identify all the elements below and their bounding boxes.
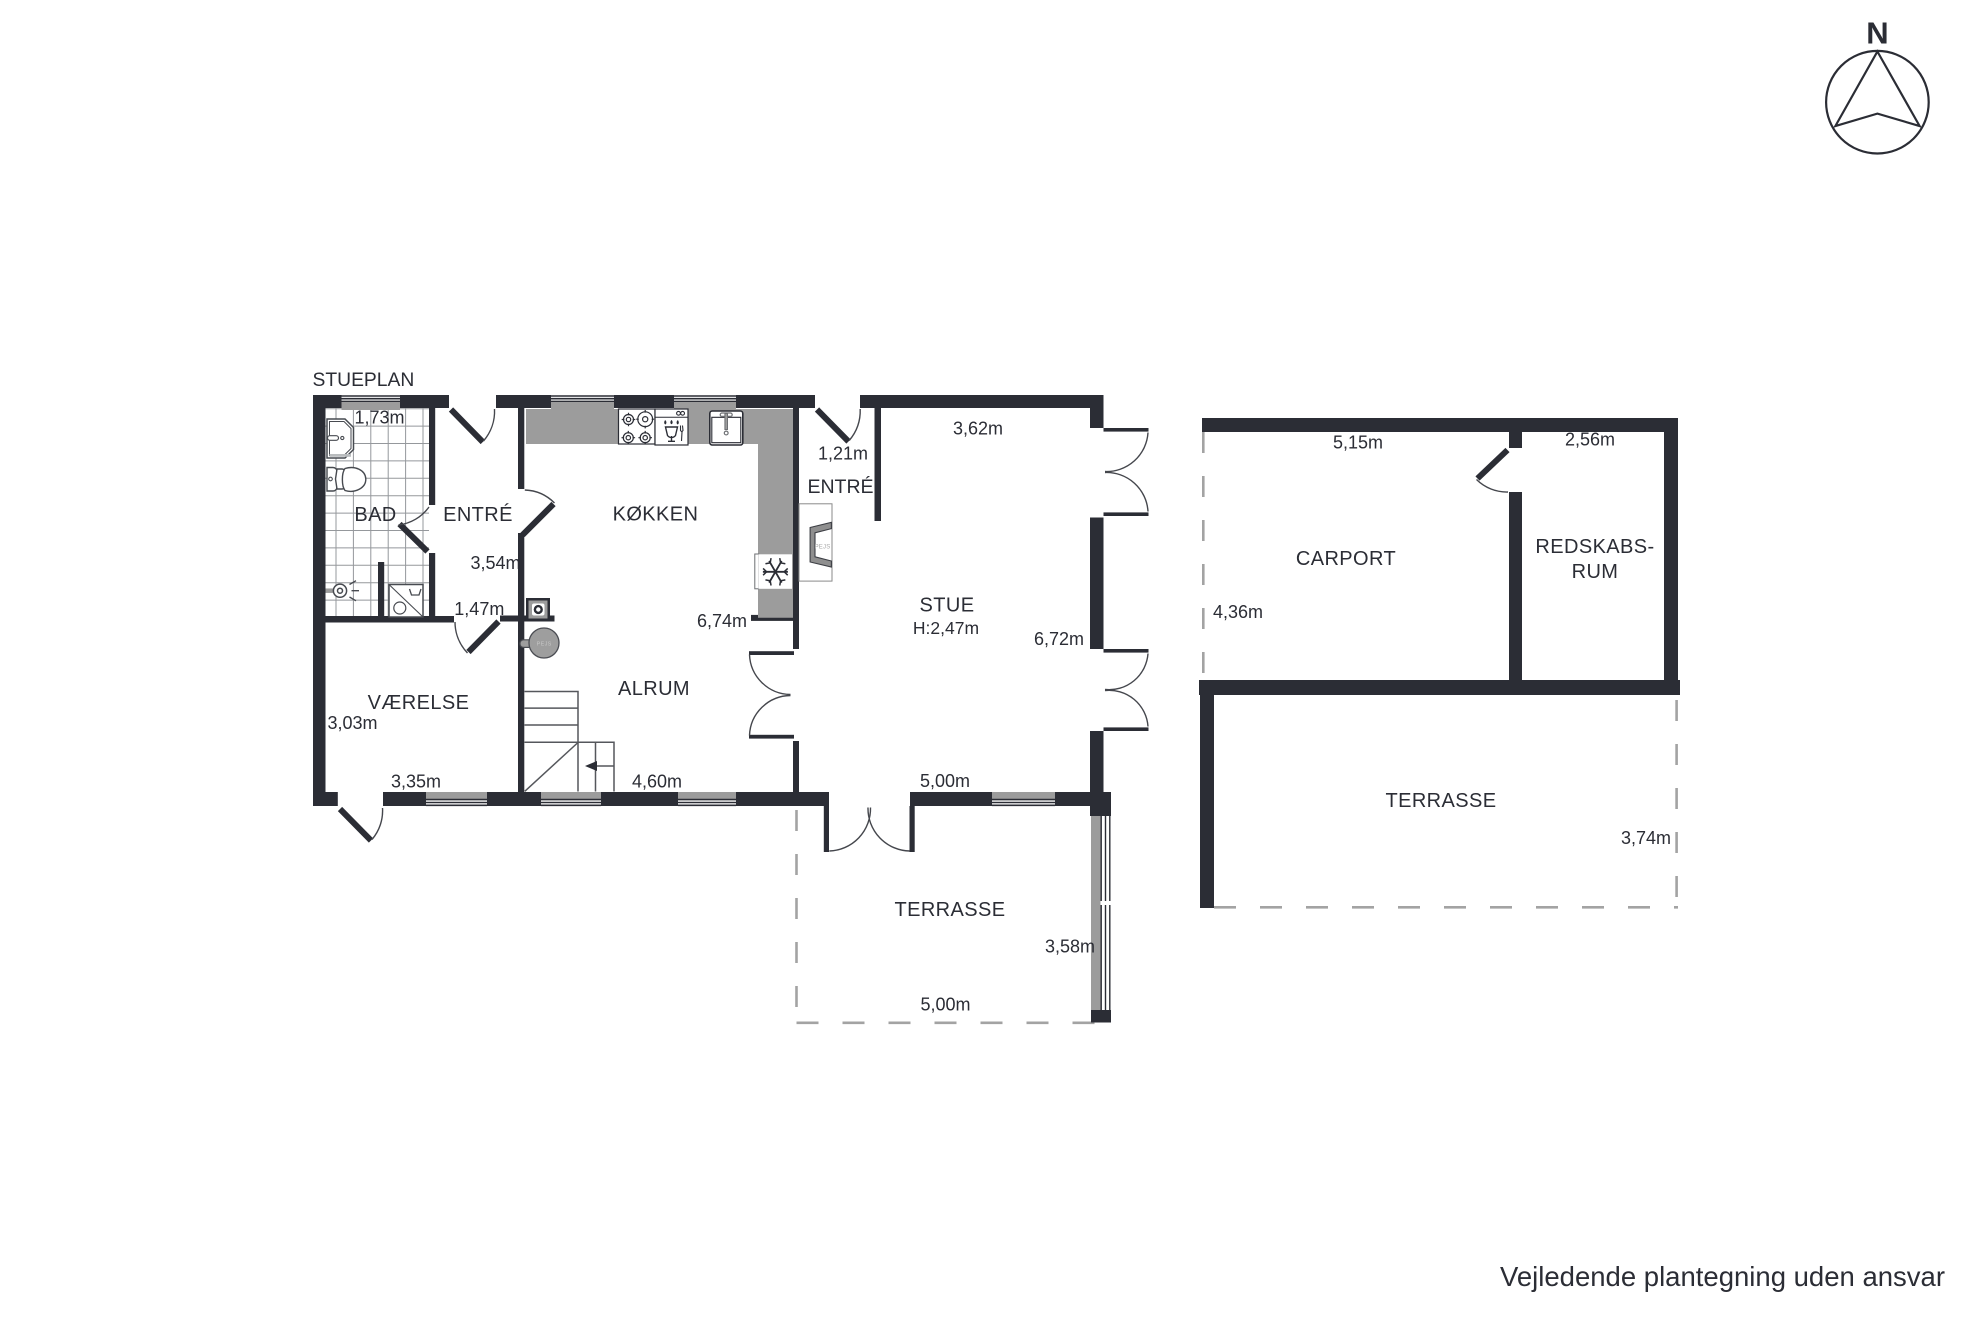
- svg-text:5,00m: 5,00m: [920, 995, 970, 1015]
- svg-text:PEJS: PEJS: [815, 545, 831, 551]
- svg-text:1,21m: 1,21m: [818, 444, 868, 464]
- svg-text:ALRUM: ALRUM: [618, 678, 690, 700]
- svg-text:CARPORT: CARPORT: [1296, 548, 1396, 570]
- svg-text:3,74m: 3,74m: [1621, 828, 1671, 848]
- svg-text:1,73m: 1,73m: [355, 408, 405, 428]
- svg-text:TERRASSE: TERRASSE: [894, 899, 1005, 921]
- svg-text:3,62m: 3,62m: [953, 419, 1003, 439]
- svg-text:N: N: [1866, 16, 1888, 51]
- svg-text:PEJS: PEJS: [537, 641, 552, 647]
- svg-text:STUE: STUE: [920, 595, 975, 617]
- svg-text:VÆRELSE: VÆRELSE: [368, 692, 470, 714]
- svg-text:3,54m: 3,54m: [471, 553, 521, 573]
- svg-text:ENTRÉ: ENTRÉ: [443, 503, 513, 526]
- svg-text:RUM: RUM: [1572, 561, 1619, 583]
- svg-text:3,58m: 3,58m: [1045, 937, 1095, 957]
- svg-text:KØKKEN: KØKKEN: [613, 504, 699, 526]
- svg-text:4,60m: 4,60m: [632, 772, 682, 792]
- svg-text:Vejledende plantegning uden an: Vejledende plantegning uden ansvar: [1500, 1261, 1945, 1292]
- svg-text:3,03m: 3,03m: [328, 713, 378, 733]
- svg-text:6,74m: 6,74m: [697, 611, 747, 631]
- svg-text:BAD: BAD: [354, 504, 396, 526]
- svg-text:2,56m: 2,56m: [1565, 430, 1615, 450]
- svg-text:5,00m: 5,00m: [920, 771, 970, 791]
- svg-text:TERRASSE: TERRASSE: [1385, 790, 1496, 812]
- svg-text:4,36m: 4,36m: [1213, 602, 1263, 622]
- svg-text:1,47m: 1,47m: [454, 599, 504, 619]
- svg-text:STUEPLAN: STUEPLAN: [313, 370, 415, 391]
- svg-text:ENTRÉ: ENTRÉ: [807, 475, 873, 498]
- svg-text:6,72m: 6,72m: [1034, 629, 1084, 649]
- svg-text:5,15m: 5,15m: [1333, 433, 1383, 453]
- svg-text:REDSKABS-: REDSKABS-: [1535, 536, 1654, 558]
- svg-text:3,35m: 3,35m: [391, 772, 441, 792]
- svg-text:H:2,47m: H:2,47m: [913, 618, 979, 638]
